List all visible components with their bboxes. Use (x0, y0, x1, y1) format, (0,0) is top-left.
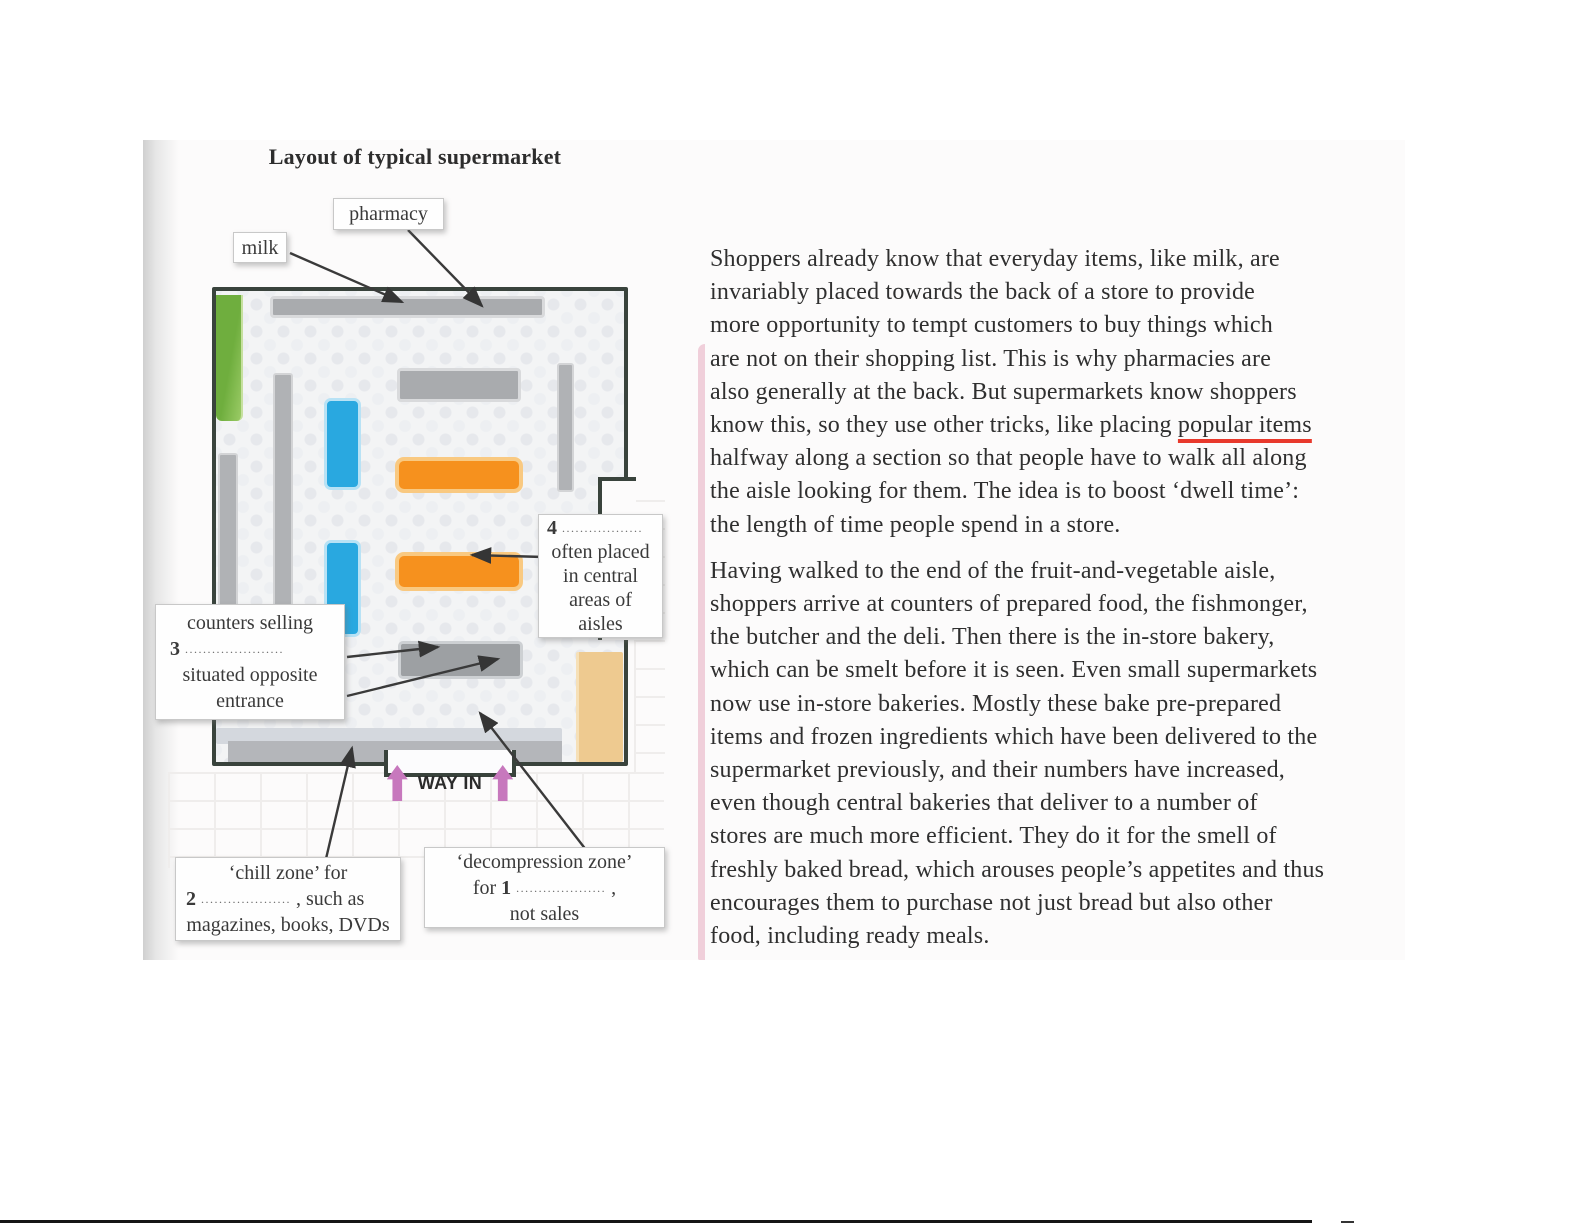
text-line: milk (238, 235, 282, 261)
text-line: Having walked to the end of the fruit-an… (710, 555, 1410, 588)
scanned-textbook-page: Layout of typical supermarket (0, 0, 1585, 1225)
tan-shelf (576, 652, 623, 762)
label-chill-zone: ‘chill zone’ for2 .................... ,… (175, 857, 401, 941)
bold-number: 2 (186, 888, 196, 910)
text-line: which can be smelt before it is seen. Ev… (710, 654, 1410, 687)
label-decompression-zone: ‘decompression zone’for 1 ..............… (424, 847, 665, 928)
text-line: 3 ...................... (160, 636, 340, 662)
text-line: food, including ready meals. (710, 920, 1410, 953)
text-line: often placed (543, 540, 658, 564)
page-bottom-rule (0, 1220, 1312, 1223)
text-line: 2 .................... , such as (180, 886, 396, 912)
text-line: in central (543, 564, 658, 588)
text-line: entrance (160, 688, 340, 714)
text-line: areas of (543, 588, 658, 612)
text-line: now use in-store bakeries. Mostly these … (710, 688, 1410, 721)
text-line: magazines, books, DVDs (180, 912, 396, 938)
text-line: supermarket previously, and their number… (710, 754, 1410, 787)
central-gray-shelf-top (397, 368, 521, 402)
text-line: shoppers arrive at counters of prepared … (710, 588, 1410, 621)
blue-gondola-upper (324, 398, 361, 490)
text-line: ‘decompression zone’ (429, 849, 660, 875)
reading-passage: Shoppers already know that everyday item… (710, 243, 1410, 953)
label-pharmacy: pharmacy (333, 198, 444, 230)
text-line: not sales (429, 901, 660, 927)
text-line: know this, so they use other tricks, lik… (710, 409, 1410, 442)
bold-number: 4 (547, 517, 557, 539)
bold-number: 3 (170, 638, 180, 660)
text-line: more opportunity to tempt customers to b… (710, 309, 1410, 342)
label-milk: milk (233, 232, 287, 263)
dotted-blank: ...................... (185, 642, 284, 656)
label-central-aisles: 4 ..................often placedin centr… (538, 514, 663, 638)
dotted-blank: .................... (201, 892, 291, 906)
text-line: the aisle looking for them. The idea is … (710, 475, 1410, 508)
passage-pink-edge (698, 344, 705, 960)
up-arrow-icon (492, 765, 513, 801)
red-underlined-phrase: popular items (1178, 412, 1312, 438)
passage-paragraph-2: Having walked to the end of the fruit-an… (710, 555, 1410, 953)
text-line: the butcher and the deli. Then there is … (710, 621, 1410, 654)
text-line: items and frozen ingredients which have … (710, 721, 1410, 754)
diagram-title: Layout of typical supermarket (205, 144, 625, 170)
dotted-blank: .................. (562, 521, 643, 535)
text-line: pharmacy (338, 201, 439, 227)
text-line: stores are much more efficient. They do … (710, 820, 1410, 853)
text-line: also generally at the back. But supermar… (710, 376, 1410, 409)
way-in-sign: WAY IN (376, 762, 524, 804)
back-wall-shelf-pharmacy-milk (270, 296, 545, 318)
text-line: are not on their shopping list. This is … (710, 343, 1410, 376)
text-line: 4 .................. (543, 516, 658, 540)
orange-popular-items-shelf-2 (395, 552, 523, 591)
text-line: encourages them to purchase not just bre… (710, 887, 1410, 920)
green-shelf (216, 295, 243, 421)
text-line: for 1 .................... , (429, 875, 660, 901)
text-line: the length of time people spend in a sto… (710, 509, 1410, 542)
up-arrow-icon (387, 765, 408, 801)
passage-paragraph-1: Shoppers already know that everyday item… (710, 243, 1410, 542)
way-in-label: WAY IN (418, 773, 482, 794)
orange-popular-items-shelf-1 (395, 457, 523, 493)
page-bottom-rule-dash (1341, 1221, 1354, 1223)
text-line: Shoppers already know that everyday item… (710, 243, 1410, 276)
dotted-blank: .................... (516, 881, 606, 895)
text-line: aisles (543, 612, 658, 636)
text-line: even though central bakeries that delive… (710, 787, 1410, 820)
text-line: halfway along a section so that people h… (710, 442, 1410, 475)
text-line: ‘chill zone’ for (180, 860, 396, 886)
right-gray-shelf (557, 363, 574, 492)
central-gray-counter-bottom (398, 641, 523, 679)
text-line: counters selling (160, 610, 340, 636)
text-line: invariably placed towards the back of a … (710, 276, 1410, 309)
bold-number: 1 (501, 877, 511, 899)
text-line: situated opposite (160, 662, 340, 688)
left-tall-gray-shelf (273, 373, 293, 619)
left-lower-gray-shelf (218, 453, 238, 617)
text-line: freshly baked bread, which arouses peopl… (710, 854, 1410, 887)
label-counters-selling: counters selling3 ......................… (155, 604, 345, 720)
